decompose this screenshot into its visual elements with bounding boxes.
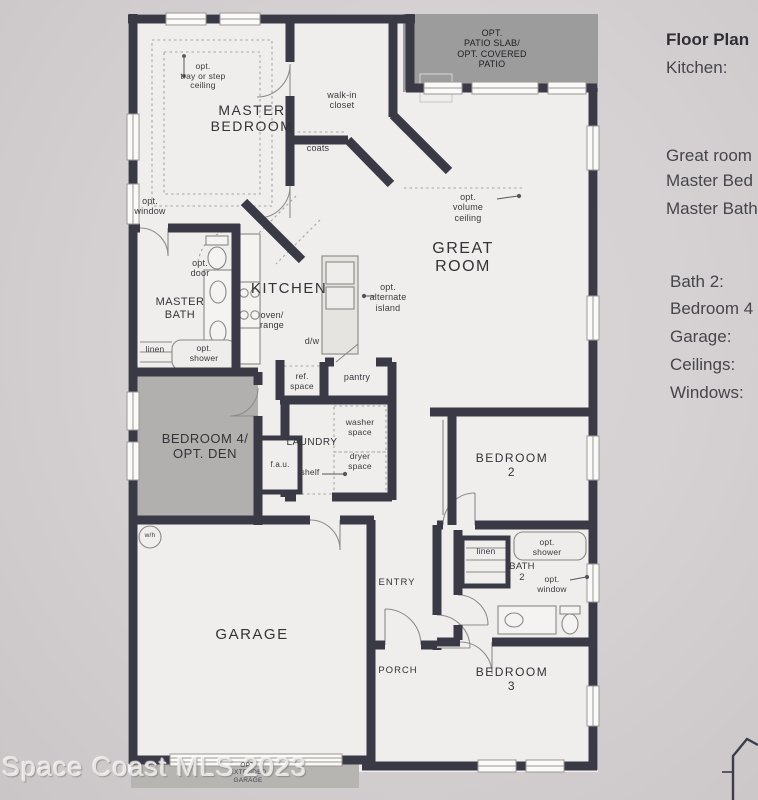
annotation-water-heater: w/h	[145, 532, 156, 539]
room-label-bath2: BATH 2	[509, 562, 534, 584]
bath2-toilet-tank	[560, 606, 580, 614]
spec-item-ceilings: Ceilings:	[670, 355, 735, 375]
floor-plan-photo: MASTER BEDROOM opt. tray or step ceiling…	[0, 0, 758, 800]
spec-item-master-bed: Master Bed	[666, 171, 753, 191]
lot-sketch-corner	[722, 739, 758, 800]
bath2-vanity	[498, 606, 556, 634]
spec-item-great-room: Great room	[666, 146, 752, 166]
annotation-opt-volume-ceiling: opt. volume ceiling	[453, 192, 483, 223]
master-toilet-tank	[206, 236, 228, 245]
room-label-master-bedroom: MASTER BEDROOM	[211, 103, 294, 135]
annotation-ref-space: ref. space	[290, 372, 314, 391]
mls-watermark: Space Coast MLS 2023	[2, 752, 307, 783]
room-label-laundry: LAUNDRY	[286, 437, 337, 448]
spec-item-kitchen: Kitchen:	[666, 58, 727, 78]
room-label-great-room: GREAT ROOM	[432, 240, 493, 276]
room-label-garage: GARAGE	[215, 626, 288, 643]
room-label-linen-bath2: linen	[477, 547, 496, 557]
room-label-walk-in-closet: walk-in closet	[327, 90, 356, 111]
room-label-bedroom2: BEDROOM 2	[476, 452, 549, 479]
annotation-oven-range: oven/ range	[260, 310, 284, 331]
floor-plan-drawing	[0, 0, 758, 800]
spec-item-garage: Garage:	[670, 327, 731, 347]
spec-item-bedroom4: Bedroom 4	[670, 299, 753, 319]
room-label-fau: f.a.u.	[271, 460, 290, 469]
room-label-pantry: pantry	[344, 372, 370, 382]
annotation-opt-shower-bath2: opt. shower	[533, 538, 562, 557]
room-label-linen-master: linen	[146, 345, 165, 355]
annotation-opt-alternate-island: opt. alternate island	[370, 282, 407, 313]
annotation-dishwasher: d/w	[305, 336, 320, 346]
annotation-opt-window-master: opt. window	[134, 196, 165, 217]
spec-item-master-bath: Master Bath	[666, 199, 758, 219]
annotation-opt-door: opt. door	[191, 258, 210, 279]
room-label-kitchen: KITCHEN	[251, 280, 327, 297]
bath2-toilet-icon	[562, 614, 578, 634]
annotation-opt-window-bath2: opt. window	[537, 575, 567, 594]
master-toilet-icon	[208, 247, 226, 269]
room-label-entry: ENTRY	[378, 578, 415, 589]
room-label-coats: coats	[307, 143, 330, 153]
room-label-bedroom3: BEDROOM 3	[476, 666, 549, 693]
spec-item-windows: Windows:	[670, 383, 744, 403]
annotation-opt-tray-ceiling: opt. tray or step ceiling	[181, 62, 226, 91]
spec-title: Floor Plan	[666, 30, 749, 50]
annotation-opt-patio: OPT. PATIO SLAB/ OPT. COVERED PATIO	[457, 28, 526, 69]
room-label-master-bath: MASTER BATH	[156, 296, 205, 321]
room-label-porch: PORCH	[378, 666, 417, 677]
room-label-bedroom4: BEDROOM 4/ OPT. DEN	[162, 432, 249, 462]
annotation-shelf: shelf	[301, 468, 320, 478]
annotation-washer-space: washer space	[346, 418, 375, 437]
annotation-opt-shower-master: opt. shower	[190, 344, 219, 363]
annotation-dryer-space: dryer space	[348, 452, 372, 471]
spec-item-bath2: Bath 2:	[670, 272, 724, 292]
